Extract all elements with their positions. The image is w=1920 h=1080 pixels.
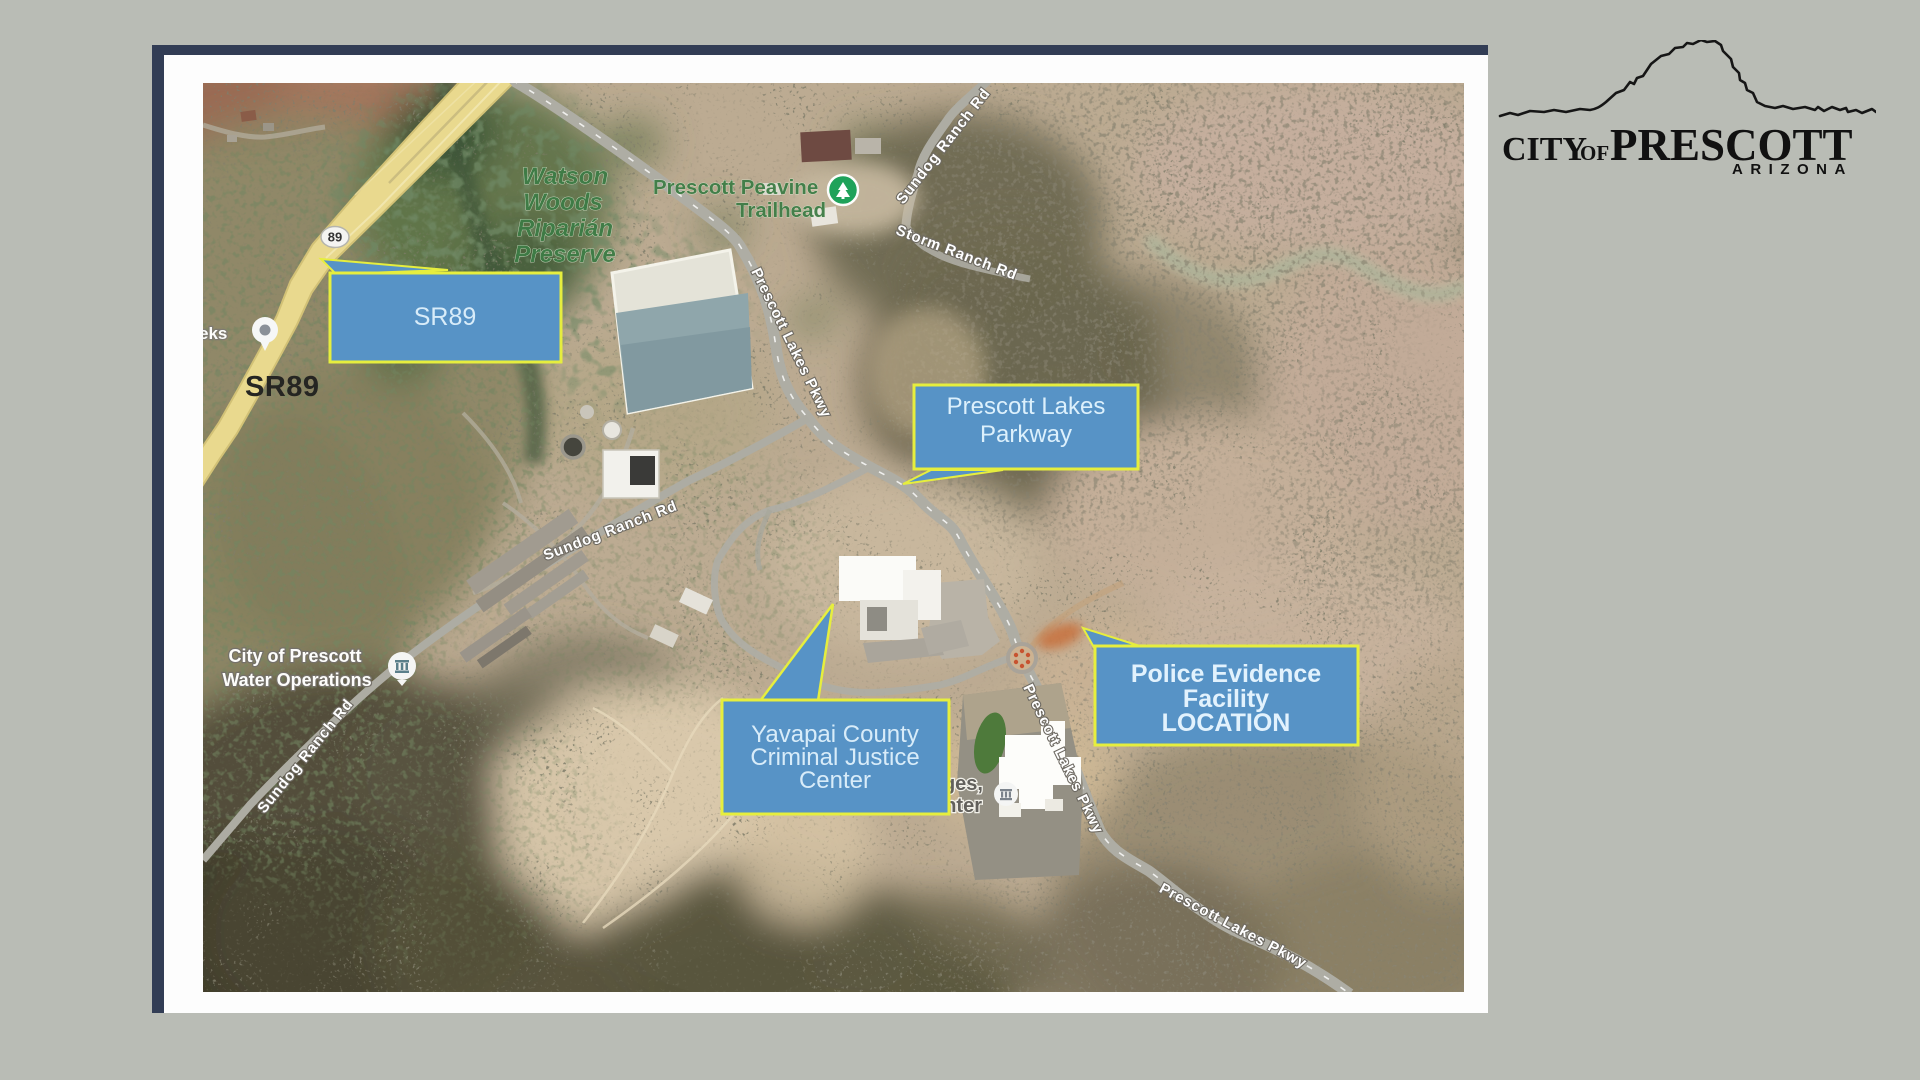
svg-text:Watson: Watson bbox=[522, 163, 608, 190]
svg-text:89: 89 bbox=[328, 230, 342, 245]
svg-text:Water Operations: Water Operations bbox=[222, 670, 371, 690]
svg-text:eks: eks bbox=[203, 324, 227, 343]
svg-text:LOCATION: LOCATION bbox=[1162, 709, 1291, 737]
svg-text:Parkway: Parkway bbox=[980, 421, 1072, 448]
svg-text:Prescott Peavine: Prescott Peavine bbox=[653, 176, 818, 199]
svg-text:Center: Center bbox=[799, 767, 871, 794]
svg-text:City of Prescott: City of Prescott bbox=[228, 646, 361, 666]
svg-text:Preserve: Preserve bbox=[514, 241, 615, 268]
svg-text:CITY: CITY bbox=[1502, 131, 1587, 168]
svg-text:SR89: SR89 bbox=[414, 303, 477, 331]
svg-text:Trailhead: Trailhead bbox=[736, 199, 826, 222]
svg-text:Woods: Woods bbox=[523, 189, 603, 216]
svg-text:Police Evidence: Police Evidence bbox=[1131, 660, 1321, 688]
svg-text:OF: OF bbox=[1580, 141, 1609, 165]
svg-text:ARIZONA: ARIZONA bbox=[1732, 161, 1853, 178]
svg-text:SR89: SR89 bbox=[245, 371, 320, 403]
svg-text:Riparián: Riparián bbox=[517, 215, 613, 242]
svg-text:Prescott Lakes: Prescott Lakes bbox=[947, 393, 1106, 420]
